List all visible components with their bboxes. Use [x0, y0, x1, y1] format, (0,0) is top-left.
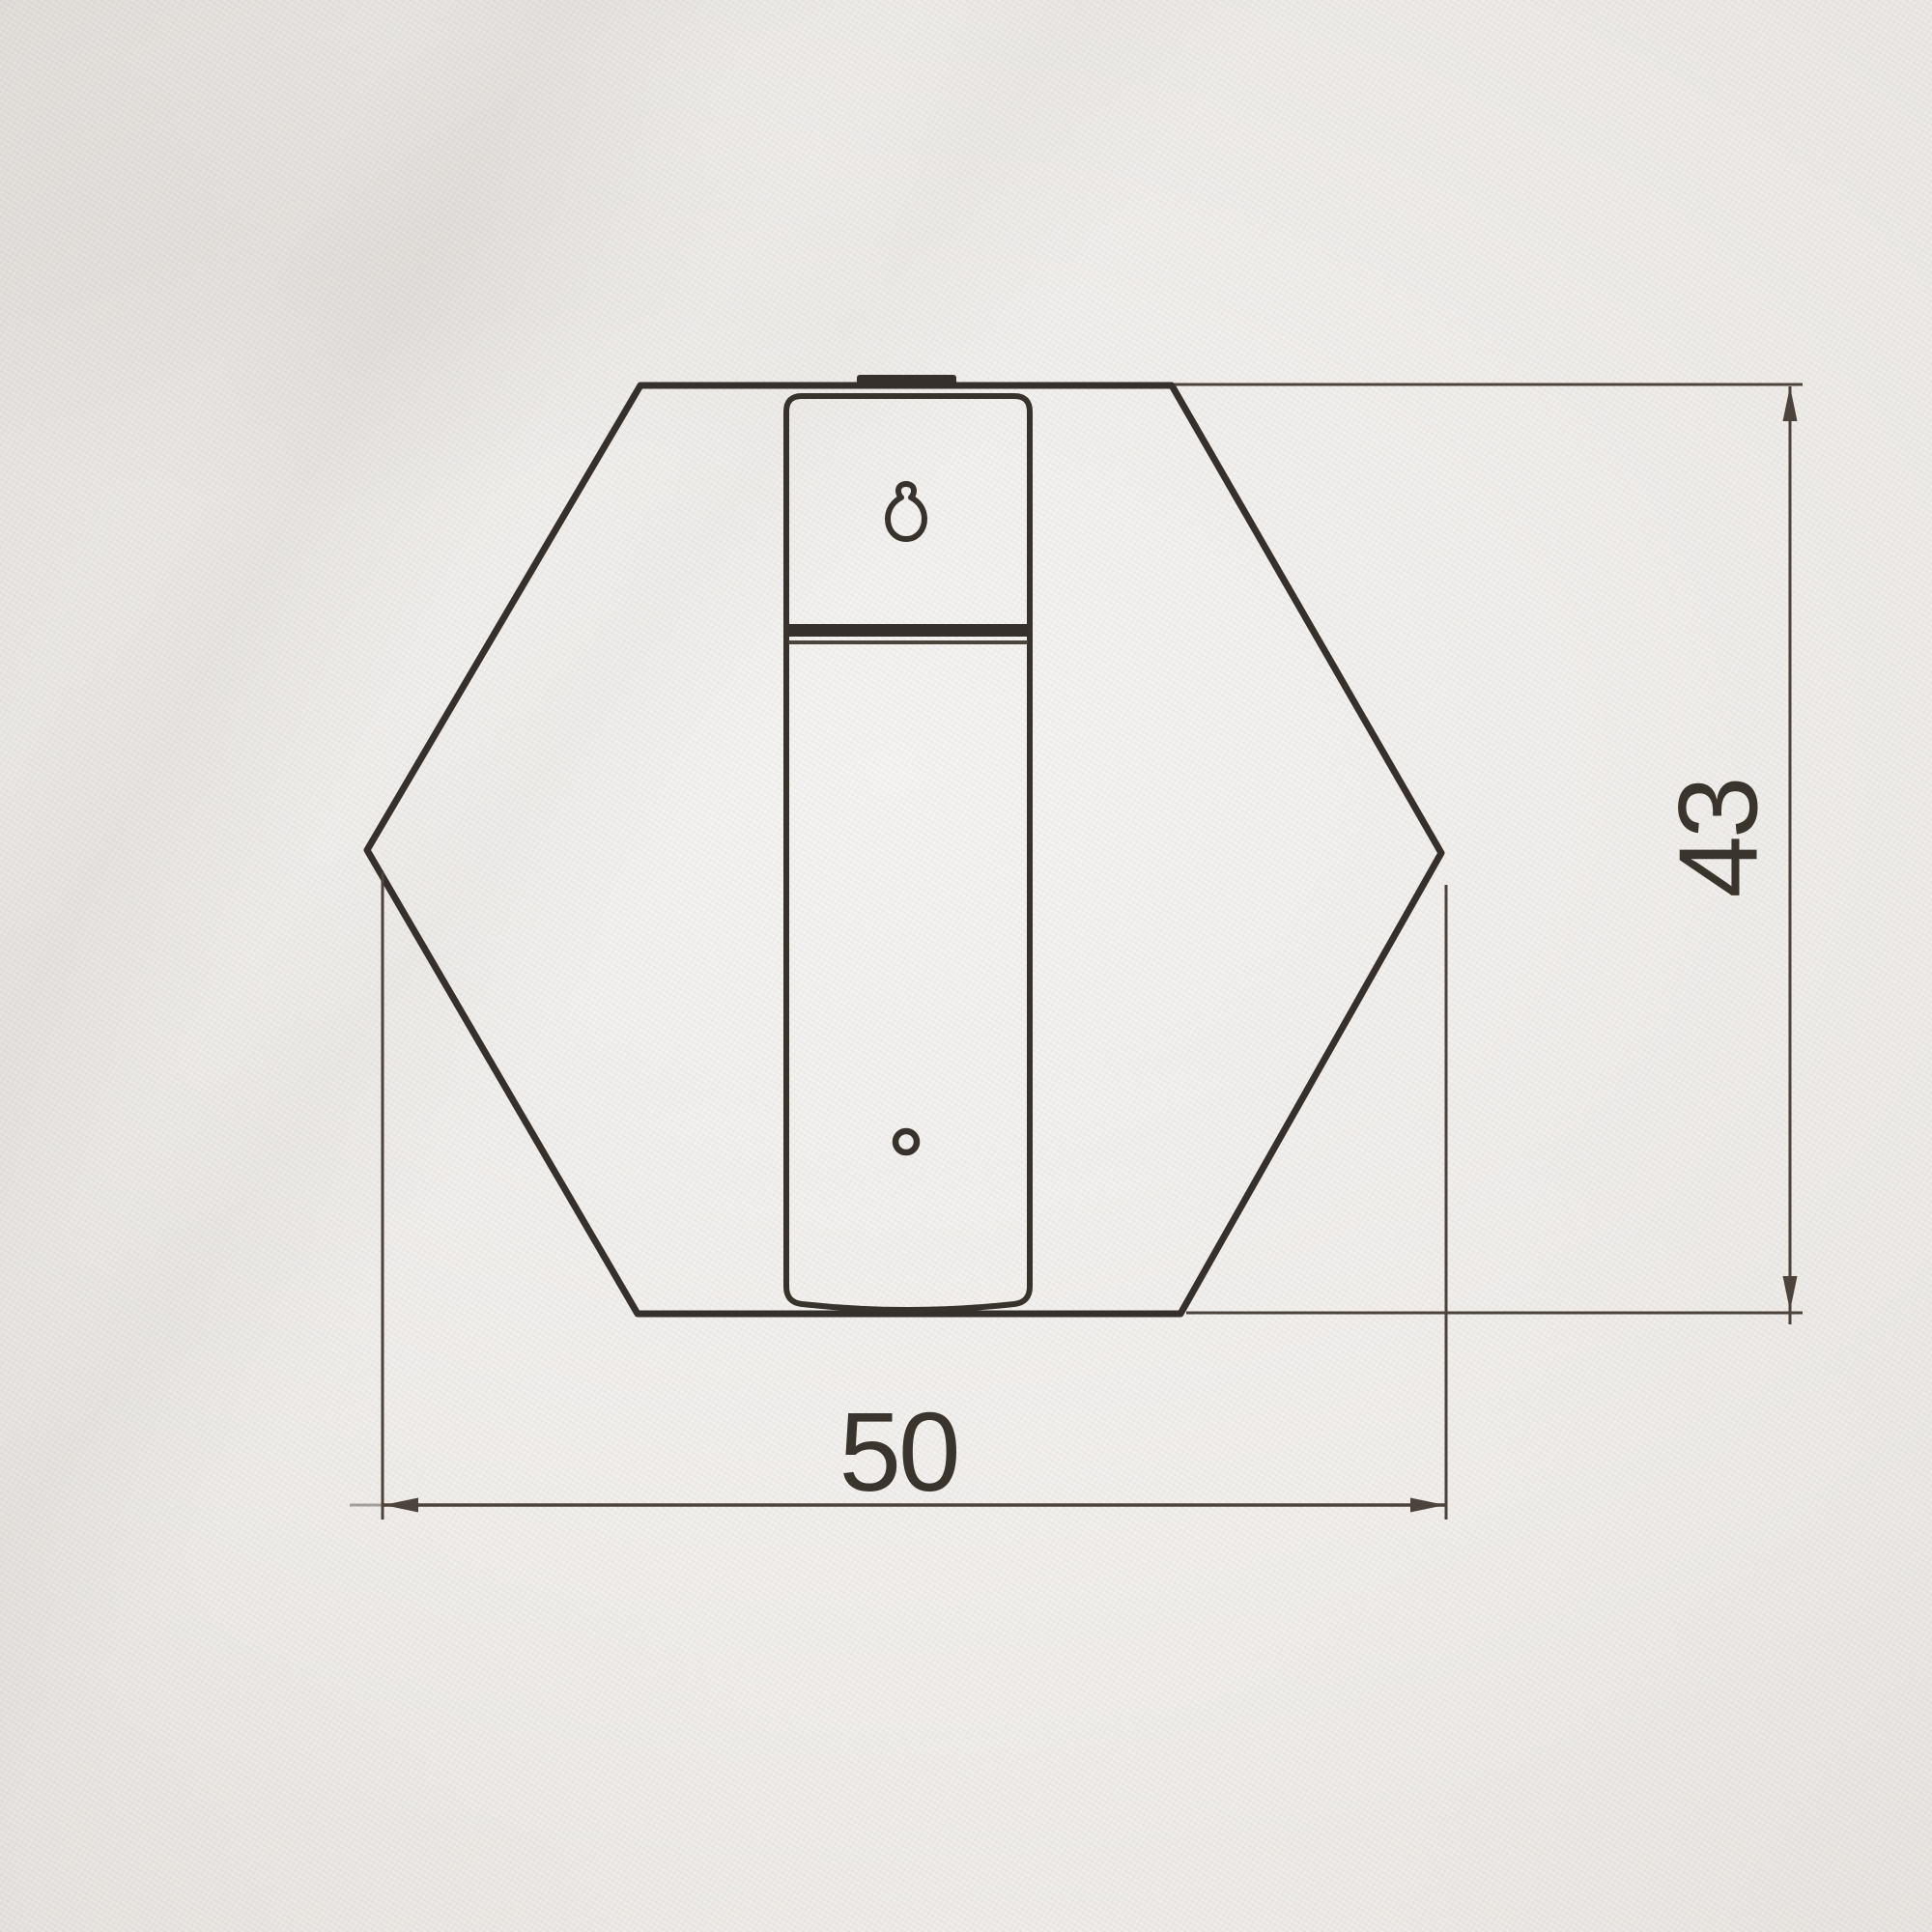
technical-drawing: 43 50 [0, 0, 1932, 1932]
arrowhead-up [1783, 386, 1798, 421]
arrowhead-right [1410, 1498, 1445, 1513]
keyhole-hole [888, 484, 924, 539]
arrowhead-left [384, 1498, 418, 1513]
top-tab [857, 375, 956, 388]
drawing-canvas: 43 50 [0, 0, 1932, 1932]
arrowhead-down [1783, 1276, 1798, 1311]
slot-band [788, 624, 1028, 637]
screw-hole [895, 1131, 917, 1152]
height-dimension-label: 43 [1656, 779, 1781, 897]
mounting-strip [786, 396, 1030, 1310]
hexagon-outline [367, 385, 1441, 1314]
width-dimension-label: 50 [838, 1389, 957, 1515]
